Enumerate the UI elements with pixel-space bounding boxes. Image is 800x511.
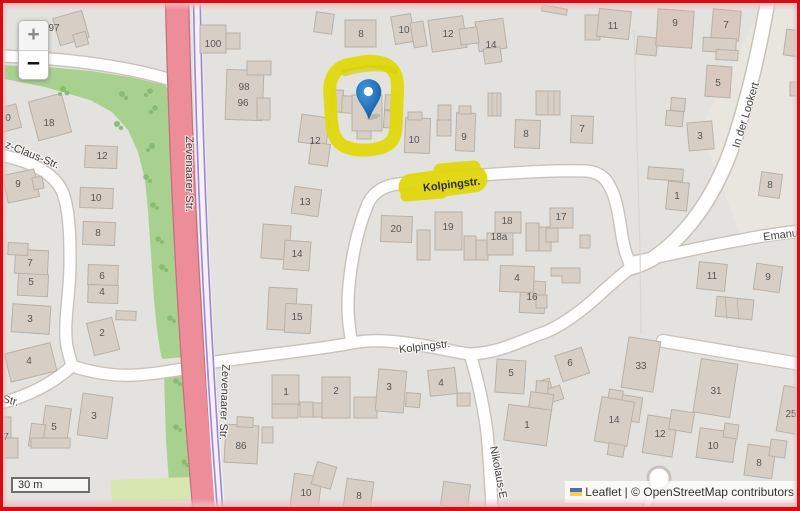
svg-text:0: 0	[5, 113, 11, 124]
svg-text:6: 6	[567, 358, 573, 369]
svg-text:17: 17	[555, 212, 567, 223]
svg-text:8: 8	[356, 491, 362, 502]
svg-text:2: 2	[333, 386, 339, 397]
svg-text:6: 6	[99, 271, 105, 282]
svg-text:9: 9	[461, 132, 467, 143]
svg-text:5: 5	[715, 78, 721, 89]
svg-text:96: 96	[237, 98, 249, 109]
svg-text:3: 3	[91, 411, 97, 422]
svg-text:19: 19	[442, 222, 454, 233]
svg-text:12: 12	[442, 29, 454, 40]
svg-text:5: 5	[28, 277, 34, 288]
svg-text:7: 7	[27, 258, 33, 269]
svg-text:14: 14	[485, 40, 497, 51]
svg-text:2: 2	[99, 328, 105, 339]
svg-text:8: 8	[523, 129, 529, 140]
svg-text:9: 9	[672, 18, 678, 29]
svg-text:8: 8	[95, 228, 101, 239]
svg-text:10: 10	[707, 441, 719, 452]
svg-text:12: 12	[309, 136, 321, 147]
svg-text:14: 14	[608, 415, 620, 426]
svg-text:8: 8	[767, 180, 773, 191]
svg-text:10: 10	[408, 135, 420, 146]
svg-text:10: 10	[300, 488, 312, 499]
svg-text:9: 9	[15, 179, 21, 190]
svg-text:10: 10	[398, 25, 410, 36]
svg-text:12: 12	[654, 429, 666, 440]
svg-text:3: 3	[697, 131, 703, 142]
svg-text:20: 20	[390, 224, 402, 235]
svg-text:18: 18	[501, 216, 513, 227]
svg-text:7: 7	[3, 432, 9, 443]
svg-text:4: 4	[514, 273, 520, 284]
svg-text:4: 4	[26, 356, 32, 367]
svg-text:16: 16	[526, 292, 538, 303]
svg-text:1: 1	[674, 191, 680, 202]
svg-text:18: 18	[43, 118, 55, 129]
svg-text:9: 9	[765, 272, 771, 283]
svg-text:31: 31	[710, 386, 722, 397]
svg-text:15: 15	[291, 312, 303, 323]
svg-text:8: 8	[358, 29, 364, 40]
svg-text:1: 1	[283, 387, 289, 398]
svg-text:11: 11	[608, 21, 619, 32]
svg-text:4: 4	[99, 287, 105, 298]
svg-text:25: 25	[785, 409, 797, 420]
svg-text:33: 33	[635, 361, 647, 372]
svg-text:86: 86	[235, 441, 247, 452]
svg-text:11: 11	[707, 271, 718, 282]
svg-text:97: 97	[48, 23, 60, 34]
svg-text:14: 14	[291, 249, 303, 260]
svg-text:8: 8	[756, 458, 762, 469]
svg-text:1: 1	[524, 420, 530, 431]
svg-text:13: 13	[299, 197, 311, 208]
svg-text:5: 5	[508, 368, 514, 379]
svg-text:7: 7	[579, 124, 585, 135]
svg-text:Zevenaarer Str.: Zevenaarer Str.	[183, 136, 195, 212]
svg-text:98: 98	[238, 82, 250, 93]
svg-text:100: 100	[205, 39, 222, 50]
svg-text:12: 12	[96, 151, 108, 162]
svg-text:18a: 18a	[491, 232, 508, 243]
svg-text:10: 10	[90, 193, 102, 204]
svg-text:5: 5	[51, 422, 57, 433]
svg-text:7: 7	[723, 20, 729, 31]
svg-text:3: 3	[27, 314, 33, 325]
svg-text:4: 4	[438, 378, 444, 389]
svg-text:3: 3	[386, 382, 392, 393]
